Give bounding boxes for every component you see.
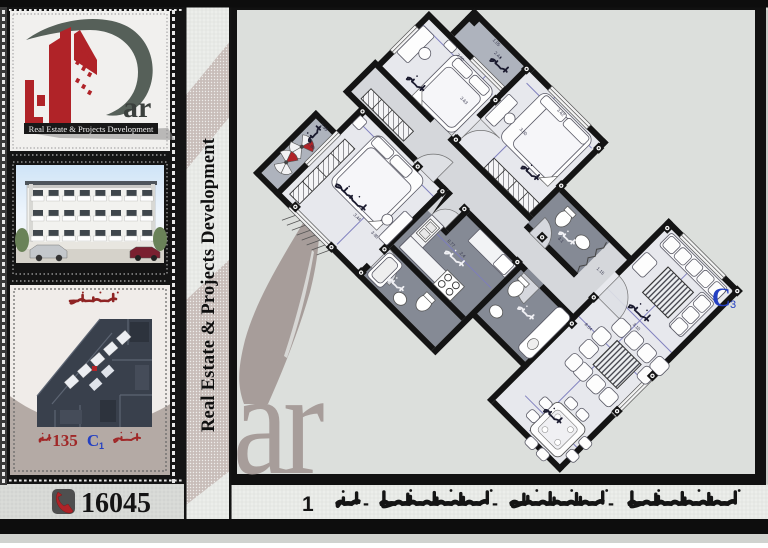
svg-text:-: - bbox=[608, 493, 614, 513]
svg-text:1: 1 bbox=[99, 441, 104, 451]
svg-text:-: - bbox=[492, 493, 498, 513]
svg-text:C: C bbox=[712, 283, 731, 312]
svg-text:3: 3 bbox=[730, 299, 736, 311]
svg-text:C: C bbox=[87, 431, 99, 450]
svg-text:Real Estate & Projects Develop: Real Estate & Projects Development bbox=[29, 124, 154, 134]
svg-text:135: 135 bbox=[52, 431, 78, 450]
svg-text:1: 1 bbox=[302, 493, 314, 516]
svg-text:ar: ar bbox=[123, 91, 151, 124]
svg-text:Real Estate & Projects Develop: Real Estate & Projects Development bbox=[199, 137, 219, 432]
svg-text:ar: ar bbox=[233, 341, 324, 506]
svg-text:-: - bbox=[363, 493, 369, 513]
svg-text:16045: 16045 bbox=[81, 488, 151, 519]
